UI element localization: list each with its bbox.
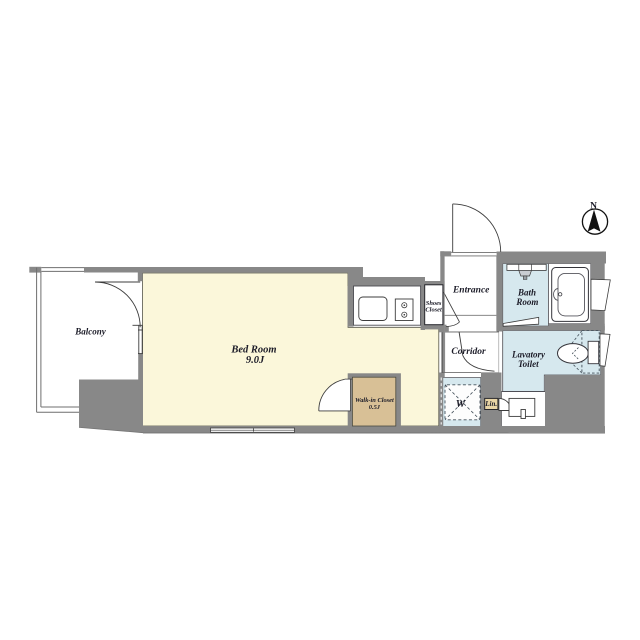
svg-text:Closet: Closet: [425, 306, 442, 313]
svg-text:N: N: [590, 202, 597, 212]
svg-text:Toilet: Toilet: [518, 359, 539, 369]
svg-text:Lin.: Lin.: [484, 400, 497, 408]
svg-text:Bath: Bath: [517, 287, 536, 297]
svg-text:W: W: [456, 398, 467, 410]
svg-text:Walk-in Closet: Walk-in Closet: [355, 397, 394, 404]
svg-text:Corridor: Corridor: [451, 347, 486, 357]
svg-text:Room: Room: [515, 297, 538, 307]
svg-text:0.5J: 0.5J: [369, 404, 381, 411]
svg-text:9.0J: 9.0J: [246, 355, 265, 366]
svg-text:Entrance: Entrance: [452, 285, 490, 295]
svg-text:Balcony: Balcony: [74, 326, 107, 336]
svg-text:Bed Room: Bed Room: [230, 344, 276, 355]
